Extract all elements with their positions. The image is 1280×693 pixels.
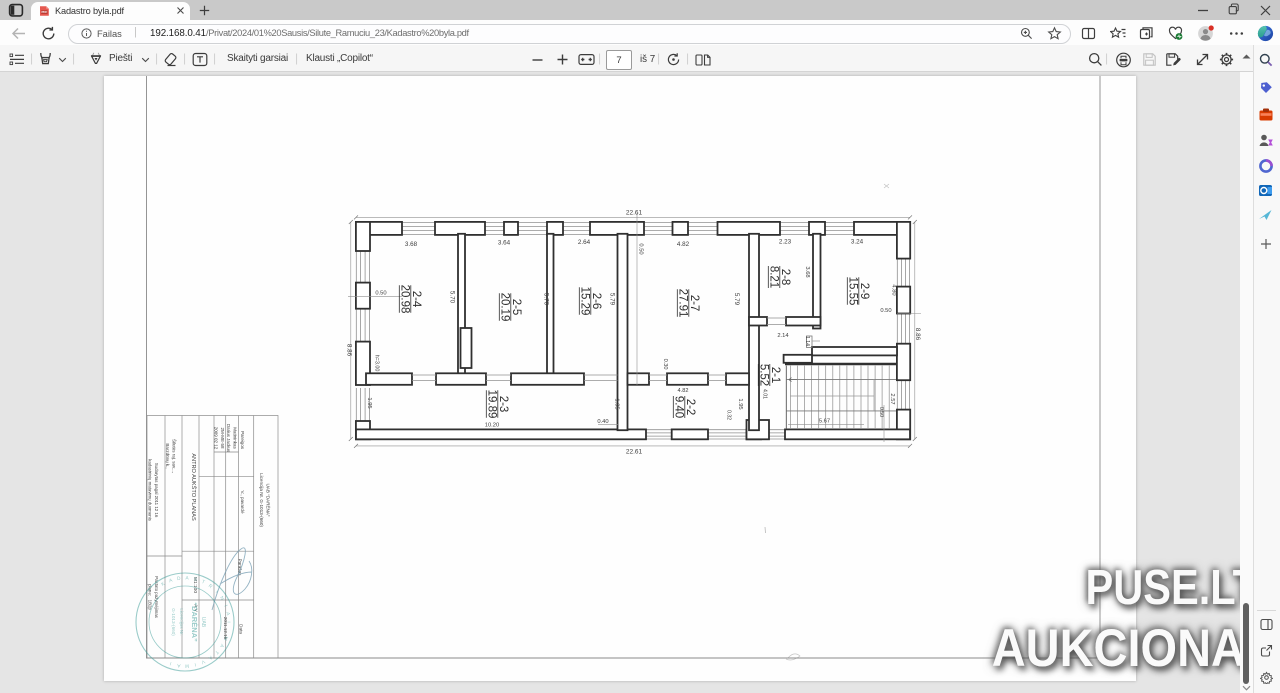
svg-text:5.79: 5.79 [609, 293, 616, 306]
svg-text:4.01: 4.01 [762, 389, 768, 399]
svg-text:15.55: 15.55 [847, 277, 859, 306]
svg-text:2.23: 2.23 [779, 239, 792, 246]
svg-text:22.61: 22.61 [626, 210, 643, 217]
svg-text:0.50: 0.50 [878, 407, 884, 417]
svg-text:PDF: PDF [42, 10, 48, 14]
svg-text:Darius Jackus: Darius Jackus [226, 424, 231, 453]
svg-text:9.40: 9.40 [673, 396, 685, 418]
svg-text:1.95: 1.95 [737, 398, 743, 409]
svg-text:0.32: 0.32 [726, 410, 732, 420]
svg-text:8.86: 8.86 [346, 344, 353, 357]
svg-text:Licencija Nr. G-1013-(660): Licencija Nr. G-1013-(660) [259, 473, 264, 527]
svg-text:22.61: 22.61 [626, 448, 643, 455]
svg-text:3.64: 3.64 [498, 240, 511, 247]
svg-text:2-5: 2-5 [510, 299, 522, 316]
svg-text:5.67: 5.67 [819, 418, 830, 424]
svg-text:0.50: 0.50 [638, 243, 644, 254]
svg-text:2-7: 2-7 [688, 295, 700, 312]
svg-text:2009 02 12: 2009 02 12 [214, 427, 219, 450]
svg-text:kadastrinių matavimų duomenis: kadastrinių matavimų duomenis [148, 459, 153, 522]
svg-text:3.68: 3.68 [804, 266, 810, 277]
svg-text:2.14: 2.14 [777, 333, 789, 339]
svg-text:Barzdūnų k.,: Barzdūnų k., [165, 443, 170, 468]
svg-text:20.19: 20.19 [499, 293, 511, 322]
svg-text:K: K [160, 581, 166, 588]
svg-text:Šilutės raj. sav...,: Šilutės raj. sav..., [172, 439, 178, 473]
svg-text:3.68: 3.68 [405, 241, 418, 248]
svg-text:5.52: 5.52 [758, 364, 770, 386]
svg-text:20.98: 20.98 [399, 285, 411, 314]
svg-text:1.95: 1.95 [614, 398, 620, 409]
svg-text:2-2: 2-2 [684, 399, 696, 416]
svg-text:15.29: 15.29 [579, 287, 591, 316]
svg-text:1.14: 1.14 [804, 336, 810, 346]
svg-text:2.64: 2.64 [578, 239, 591, 246]
svg-text:2.57: 2.57 [889, 393, 895, 404]
svg-text:2-9: 2-9 [858, 283, 870, 300]
svg-text:1.95: 1.95 [366, 397, 372, 408]
svg-text:A: A [168, 577, 174, 584]
svg-text:2-3: 2-3 [497, 396, 509, 413]
svg-text:8.86: 8.86 [914, 328, 921, 341]
svg-text:4.82: 4.82 [678, 388, 689, 394]
svg-text:Sudarytas pagal 2011 12 16: Sudarytas pagal 2011 12 16 [154, 463, 159, 518]
svg-text:4.82: 4.82 [677, 241, 690, 248]
svg-text:D: D [177, 576, 182, 582]
svg-text:h=3.00: h=3.00 [374, 355, 380, 372]
svg-text:0.30: 0.30 [662, 359, 668, 370]
svg-text:A: A [185, 575, 189, 581]
svg-text:0.50: 0.50 [375, 291, 386, 297]
svg-text:5.70: 5.70 [449, 291, 456, 304]
svg-text:2-1: 2-1 [769, 367, 781, 384]
svg-text:2-8: 2-8 [779, 269, 791, 286]
svg-text:V., pavardė: V., pavardė [240, 490, 245, 514]
svg-text:19.89: 19.89 [486, 390, 498, 419]
svg-text:2M-ME-58: 2M-ME-58 [220, 427, 225, 449]
svg-text:UAB “DARĖNA”: UAB “DARĖNA” [266, 484, 272, 517]
svg-text:2-6: 2-6 [590, 293, 602, 310]
svg-text:ANTRO AUKŠTO PLANAS: ANTRO AUKŠTO PLANAS [190, 453, 197, 521]
svg-text:27.91: 27.91 [677, 289, 689, 318]
svg-text:Pareigos: Pareigos [240, 431, 245, 450]
svg-text:2-4: 2-4 [410, 291, 422, 308]
svg-text:0.50: 0.50 [880, 308, 891, 314]
svg-text:5.79: 5.79 [733, 293, 740, 306]
svg-text:4.80: 4.80 [891, 284, 897, 295]
svg-text:8.21: 8.21 [768, 266, 780, 288]
svg-text:Matininkas: Matininkas [232, 427, 237, 449]
svg-text:10.20: 10.20 [485, 423, 500, 429]
svg-text:0.40: 0.40 [597, 419, 608, 425]
svg-text:5.70: 5.70 [543, 293, 550, 306]
svg-text:3.24: 3.24 [851, 239, 864, 246]
